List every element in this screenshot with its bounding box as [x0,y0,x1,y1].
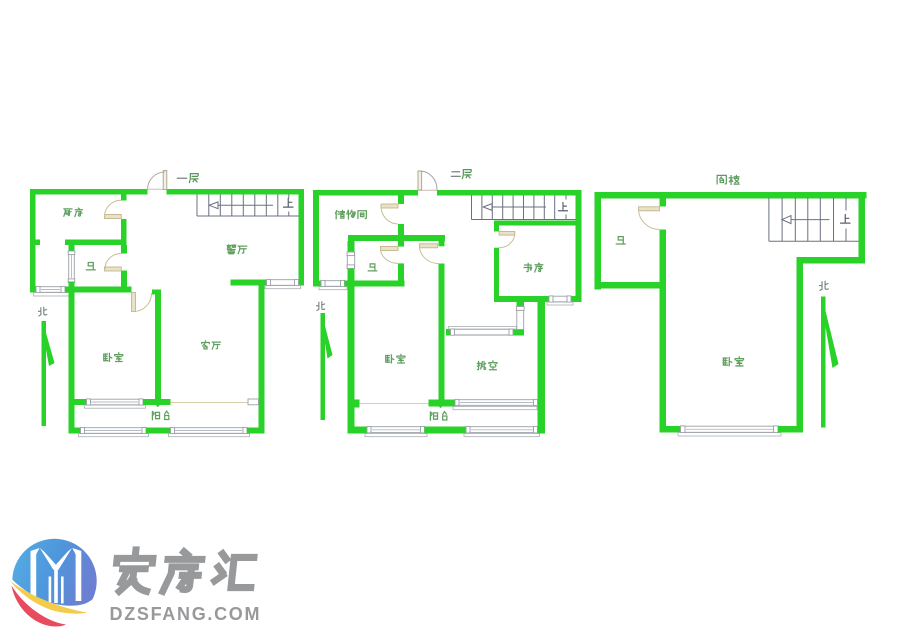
svg-text:DZSFANG.COM: DZSFANG.COM [110,604,262,624]
